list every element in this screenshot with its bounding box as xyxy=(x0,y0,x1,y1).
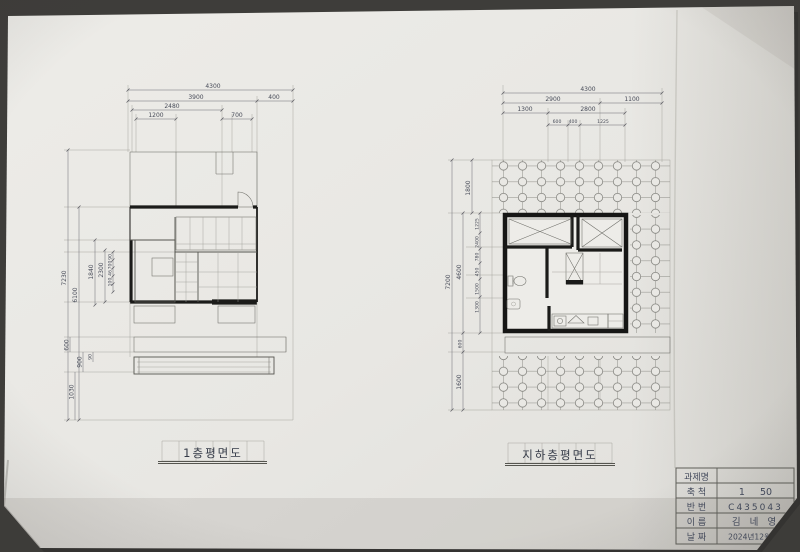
photographed-drawing-sheet: 4300 3900 400 2480 1200 700 7230 6100 18… xyxy=(0,0,800,552)
photo-vignette xyxy=(0,0,800,552)
